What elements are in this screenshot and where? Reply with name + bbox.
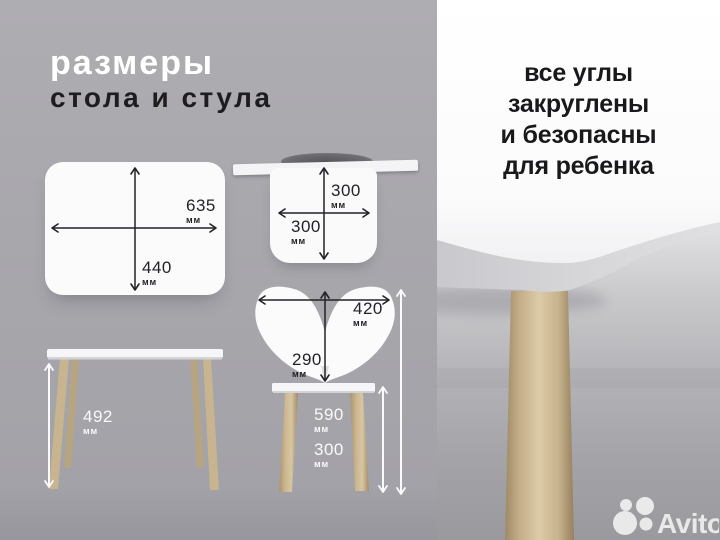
chair-seat-edge xyxy=(273,391,374,393)
table-side-view-diagram xyxy=(20,340,235,500)
tabletop-dimension-arrows xyxy=(40,160,230,300)
caption-line-4: для ребенка xyxy=(437,151,720,182)
dim-label-seat-width: 300 мм xyxy=(291,219,321,246)
dim-label-tabletop-width: 635 мм xyxy=(186,198,216,225)
dim-label-table-height: 492 мм xyxy=(83,409,113,436)
dim-label-back-width: 420 мм xyxy=(353,301,383,328)
avito-logo-circle-small-top xyxy=(620,499,632,511)
dim-label-tabletop-depth: 440 мм xyxy=(142,260,172,287)
butterfly-chair-diagram xyxy=(225,280,435,510)
avito-logo-circle-right-top xyxy=(636,497,654,515)
table-leg-front-left xyxy=(49,358,69,489)
table-top-edge xyxy=(48,357,222,360)
title-line-1: размеры xyxy=(50,44,273,82)
table-leg-photo xyxy=(505,291,574,540)
dim-label-back-height: 290 мм xyxy=(292,352,322,379)
safety-caption: все углы закруглены и безопасны для ребе… xyxy=(437,58,720,182)
seat-dimension-arrows xyxy=(270,160,385,270)
dim-label-seat-depth: 300 мм xyxy=(331,183,361,210)
infographic-canvas: размеры стола и стула 635 мм 440 мм xyxy=(0,0,720,540)
caption-line-2: закруглены xyxy=(437,89,720,120)
caption-line-1: все углы xyxy=(437,58,720,89)
table-leg-front-right xyxy=(203,358,219,490)
title-line-2: стола и стула xyxy=(50,83,273,113)
chair-seat-shape xyxy=(272,383,375,392)
chair-leg-right xyxy=(350,393,369,491)
page-title: размеры стола и стула xyxy=(50,44,273,113)
avito-logo-text: Avito xyxy=(657,508,719,539)
floor-shadow-band xyxy=(437,368,720,388)
table-top-shape xyxy=(47,349,223,358)
dim-label-seat-height: 300 мм xyxy=(314,442,344,469)
dimensions-panel: размеры стола и стула 635 мм 440 мм xyxy=(0,0,437,540)
photo-panel: все углы закруглены и безопасны для ребе… xyxy=(437,0,720,540)
dim-label-total-height: 590 мм xyxy=(314,407,344,434)
avito-logo-circle-right-bottom xyxy=(640,518,653,531)
caption-line-3: и безопасны xyxy=(437,120,720,151)
avito-watermark: Avito xyxy=(609,493,719,539)
avito-logo-circle-large xyxy=(613,511,637,535)
table-leg-rear-right xyxy=(190,358,204,468)
chair-leg-left xyxy=(279,393,298,492)
